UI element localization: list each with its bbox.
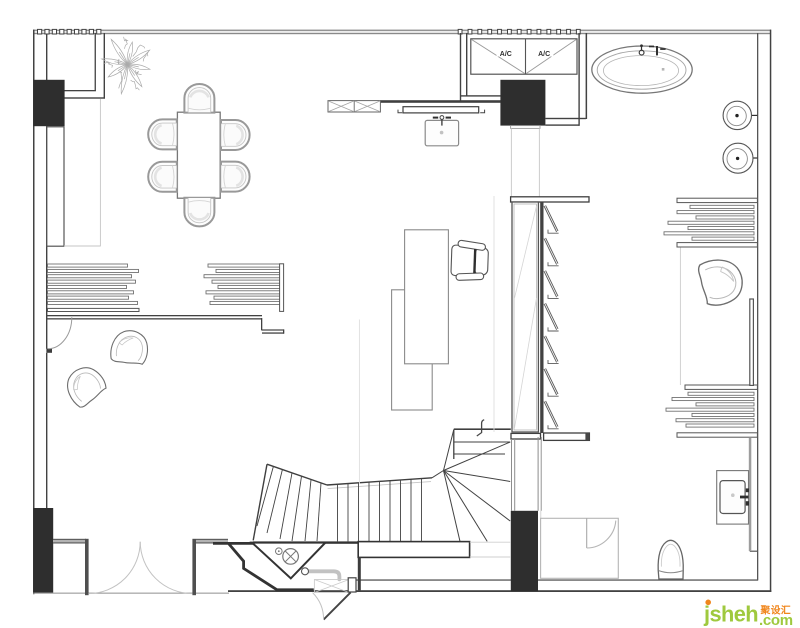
svg-text:A/C: A/C [538,51,550,58]
svg-text:A/C: A/C [500,51,512,58]
svg-text:jsheh: jsheh [703,602,758,627]
svg-text:聚设汇: 聚设汇 [760,604,792,617]
